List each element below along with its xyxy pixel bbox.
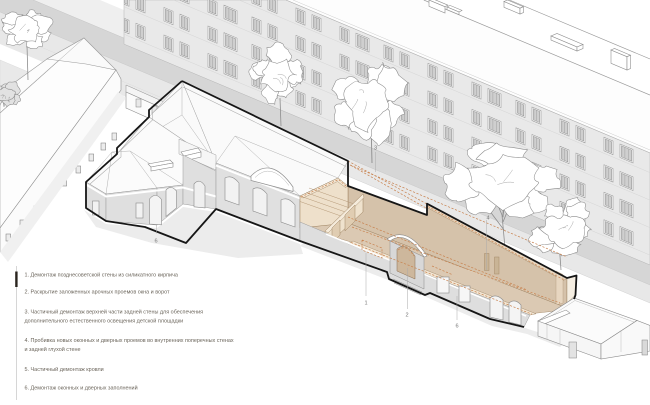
svg-text:6: 6 — [456, 324, 459, 330]
svg-text:3. Частичный демонтаж верхней: 3. Частичный демонтаж верхней части задн… — [25, 309, 204, 316]
svg-text:5. Частичный демонтаж кровли: 5. Частичный демонтаж кровли — [25, 366, 104, 373]
svg-text:4. Пробивка новых оконных и дв: 4. Пробивка новых оконных и дверных прое… — [25, 338, 234, 344]
svg-text:6: 6 — [155, 239, 158, 245]
svg-text:дополнительного естественного: дополнительного естественного освещения … — [25, 318, 184, 325]
svg-text:и задней глухой стене: и задней глухой стене — [25, 346, 81, 353]
svg-text:2. Раскрытие заложенных арочны: 2. Раскрытие заложенных арочных проемов … — [25, 290, 170, 296]
svg-text:3: 3 — [374, 146, 377, 152]
svg-text:6. Демонтаж оконных и дверных: 6. Демонтаж оконных и дверных заполнений — [25, 385, 138, 392]
svg-text:4: 4 — [487, 216, 490, 222]
svg-text:2: 2 — [406, 313, 409, 319]
svg-text:1. Демонтаж позднесоветской ст: 1. Демонтаж позднесоветской стены из сил… — [25, 272, 179, 279]
svg-text:1: 1 — [365, 301, 368, 307]
